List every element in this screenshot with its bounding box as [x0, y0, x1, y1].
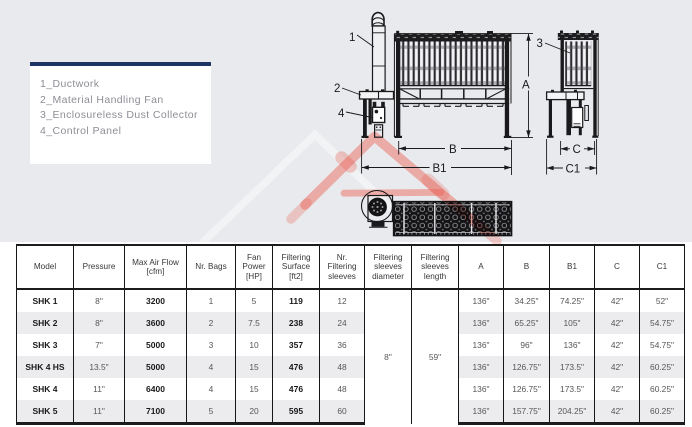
svg-text:B1: B1 — [433, 163, 447, 175]
svg-text:3: 3 — [537, 38, 543, 50]
svg-text:C: C — [573, 144, 581, 156]
svg-text:A: A — [522, 80, 530, 92]
svg-text:4: 4 — [338, 108, 345, 120]
svg-text:1: 1 — [349, 32, 355, 44]
svg-text:C1: C1 — [566, 163, 581, 175]
svg-text:2: 2 — [334, 83, 340, 95]
svg-text:B: B — [449, 144, 457, 156]
